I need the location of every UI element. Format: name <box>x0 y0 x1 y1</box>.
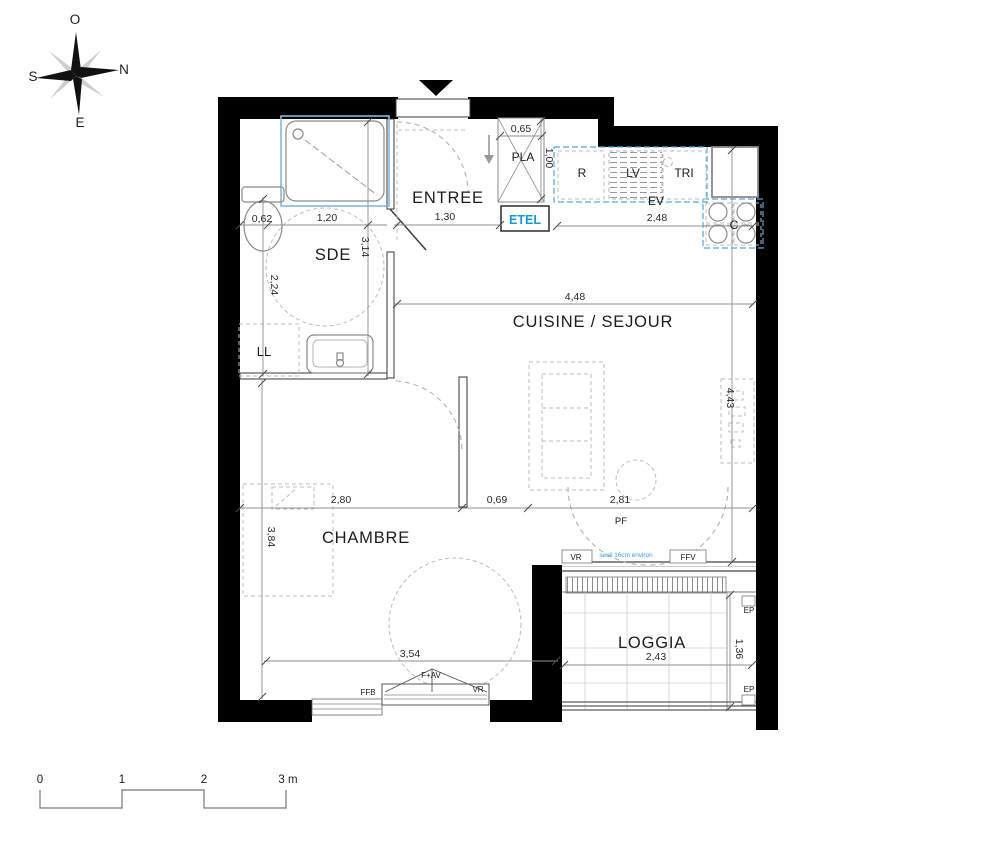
pillow <box>272 487 314 509</box>
scale-tick-2: 2 <box>201 774 207 786</box>
label-pla: PLA <box>512 150 535 164</box>
burner-icon <box>709 203 727 221</box>
compass-east: E <box>75 115 84 130</box>
dim-sde-width: 1,20 <box>317 212 338 224</box>
floor-plan: ENTREE SDE CUISINE / SEJOUR CHAMBRE LOGG… <box>0 0 1000 857</box>
label-f-av: F+AV <box>421 671 441 680</box>
label-c: C <box>730 218 739 232</box>
burner-icon <box>737 225 755 243</box>
dim-wc-width: 0,62 <box>252 213 273 225</box>
threshold-hatch <box>566 577 726 593</box>
label-vr-pf: VR <box>570 553 581 562</box>
ep-bottom-box <box>742 695 755 705</box>
label-ep-bottom: EP <box>744 685 755 694</box>
compass-north: N <box>119 62 129 77</box>
compass-rose: O N S E <box>28 12 128 130</box>
label-ep-top: EP <box>744 606 755 615</box>
room-label-sde: SDE <box>315 246 351 264</box>
turning-circle-chambre <box>389 558 521 690</box>
dim-entree-width: 1,30 <box>435 211 456 223</box>
burner-icon <box>709 225 727 243</box>
label-seuil: seuil 16cm environ <box>599 552 653 559</box>
dim-sejour-width: 4,48 <box>565 291 586 303</box>
label-pf: PF <box>615 516 627 527</box>
scale-bar: 0 1 2 3 m <box>37 774 298 808</box>
floor-plan-svg: ENTREE SDE CUISINE / SEJOUR CHAMBRE LOGG… <box>0 0 1000 857</box>
turning-circle-sde <box>266 208 384 326</box>
compass-south: S <box>28 69 37 84</box>
dim-chambre-width: 2,80 <box>331 494 352 506</box>
entrance-marker-icon <box>419 80 453 96</box>
ep-top-box <box>742 596 755 606</box>
chambre-door-swing <box>396 381 462 451</box>
burner-icon <box>737 203 755 221</box>
label-etel: ETEL <box>509 213 541 227</box>
shower-drain-icon <box>293 129 303 139</box>
dim-sde-length: 3,14 <box>359 237 371 258</box>
label-vr-fav: VR <box>472 685 483 694</box>
dim-sejour-depth: 4,43 <box>724 388 736 409</box>
dim-plan-travail: 2,48 <box>647 212 668 224</box>
room-label-entree: ENTREE <box>412 189 484 207</box>
room-label-cuisine-sejour: CUISINE / SEJOUR <box>513 313 673 331</box>
sofa-table <box>529 362 604 490</box>
bed <box>243 484 333 596</box>
label-tri: TRI <box>674 166 693 180</box>
dim-placard-width: 0,65 <box>511 123 532 135</box>
dim-degagement: 0,69 <box>487 494 508 506</box>
label-ev: EV <box>648 194 664 208</box>
dim-sde-left: 2,24 <box>268 275 280 296</box>
facade-windows <box>312 669 489 715</box>
sde-door-leaf <box>390 209 426 250</box>
dim-placard-depth: 1,00 <box>543 148 555 169</box>
scale-tick-3: 3 m <box>278 774 297 786</box>
dim-chambre-depth: 3,84 <box>265 527 277 548</box>
label-ffv: FFV <box>680 553 696 562</box>
dim-baie-width: 2,81 <box>610 494 631 506</box>
label-ffb: FFB <box>360 688 375 697</box>
compass-west: O <box>70 12 81 27</box>
room-label-loggia: LOGGIA <box>618 634 686 652</box>
dim-loggia-depth: 1,36 <box>733 639 745 660</box>
duct-box <box>712 147 758 197</box>
scale-tick-1: 1 <box>119 774 125 786</box>
entrance-door-swing <box>397 122 468 193</box>
label-ll: LL <box>257 344 271 359</box>
dim-loggia-width: 2,43 <box>646 651 667 663</box>
doors <box>390 122 494 451</box>
label-lv: LV <box>626 166 640 180</box>
ffb-window <box>312 699 382 715</box>
dim-chambre-facade: 3,54 <box>400 648 421 660</box>
scale-tick-0: 0 <box>37 774 43 786</box>
room-label-chambre: CHAMBRE <box>322 529 410 547</box>
interior-walls <box>240 99 470 507</box>
label-r: R <box>578 166 587 180</box>
